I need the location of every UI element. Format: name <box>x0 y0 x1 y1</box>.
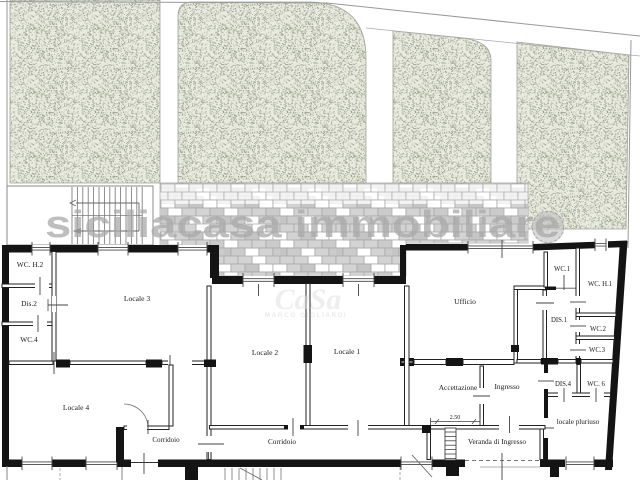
svg-text:locale pluriuso: locale pluriuso <box>557 418 600 426</box>
svg-text:Dis.2: Dis.2 <box>21 299 37 308</box>
svg-text:Accettazione: Accettazione <box>439 383 478 392</box>
svg-text:Locale 2: Locale 2 <box>252 348 279 357</box>
svg-text:siciliacasa immobiliare: siciliacasa immobiliare <box>45 204 560 246</box>
svg-text:2.50: 2.50 <box>450 415 461 421</box>
svg-text:Locale 3: Locale 3 <box>124 294 151 303</box>
svg-text:DIS.4: DIS.4 <box>555 381 572 388</box>
svg-text:Locale 4: Locale 4 <box>63 403 90 412</box>
svg-text:DIS.1: DIS.1 <box>551 317 567 324</box>
svg-text:Locale 1: Locale 1 <box>334 347 361 356</box>
svg-text:Veranda di Ingresso: Veranda di Ingresso <box>468 437 526 446</box>
svg-text:WC. 6: WC. 6 <box>587 381 605 388</box>
svg-text:Ufficio: Ufficio <box>454 297 476 306</box>
svg-text:Corridoio: Corridoio <box>152 436 180 444</box>
svg-text:MARCO GIGLIARDI: MARCO GIGLIARDI <box>265 312 347 319</box>
svg-text:WC. H.1: WC. H.1 <box>588 281 612 288</box>
svg-text:Corridoio: Corridoio <box>268 438 296 446</box>
svg-text:Ingresso: Ingresso <box>494 382 519 391</box>
svg-text:WC.2: WC.2 <box>590 326 607 333</box>
svg-text:WC.3: WC.3 <box>589 347 606 354</box>
svg-text:WC.1: WC.1 <box>554 266 570 273</box>
svg-text:WC. H.2: WC. H.2 <box>17 260 44 269</box>
svg-text:WC.4: WC.4 <box>20 335 38 344</box>
